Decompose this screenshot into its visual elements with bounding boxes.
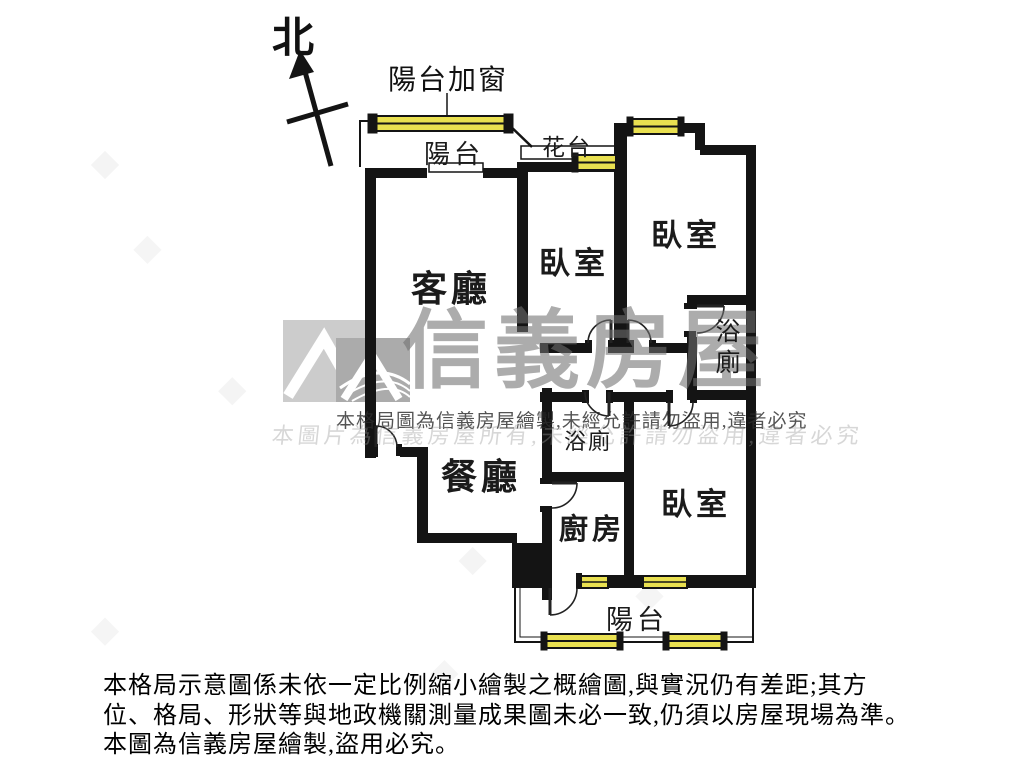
room-label-bedroom-top-middle: 臥室: [539, 238, 609, 283]
balcony-door-gap: [548, 575, 578, 588]
room-label-bathroom-middle: 浴廁: [564, 424, 612, 456]
disclaimer-line-2: 位、格局、形狀等與地政機關測量成果圖未必一致,仍須以房屋現場為準。: [103, 702, 910, 732]
north-arrow-icon: [287, 50, 348, 166]
sinyi-logo-icon: [283, 320, 410, 402]
disclaimer-line-1: 本格局示意圖係未依一定比例縮小繪製之概繪圖,與實況仍有差距;其方: [103, 672, 910, 702]
room-label-balcony-top: 陽台: [424, 134, 484, 171]
room-label-dining-room: 餐廳: [441, 448, 521, 500]
balcony-window-annotation: 陽台加窗: [388, 58, 508, 98]
room-label-bedroom-top-right: 臥室: [651, 210, 721, 255]
disclaimer-text: 本格局示意圖係未依一定比例縮小繪製之概繪圖,與實況仍有差距;其方 位、格局、形狀…: [103, 672, 910, 761]
north-label: 北: [272, 4, 314, 65]
disclaimer-line-3: 本圖為信義房屋繪製,盜用必究。: [103, 731, 910, 761]
room-label-balcony-bottom: 陽台: [606, 598, 668, 637]
floor-plan-page: 信義房屋 本格局圖為信義房屋繪製,未經允許請勿盜用,違者必究 本圖片為信義房屋所…: [0, 0, 1024, 768]
room-label-bathroom-right: 浴廁: [707, 318, 743, 380]
room-label-living-room: 客廳: [411, 260, 491, 312]
room-label-kitchen: 廚房: [559, 506, 625, 548]
room-label-bedroom-bottom-right: 臥室: [661, 479, 731, 524]
room-label-flower-bed: 花台: [542, 128, 592, 162]
